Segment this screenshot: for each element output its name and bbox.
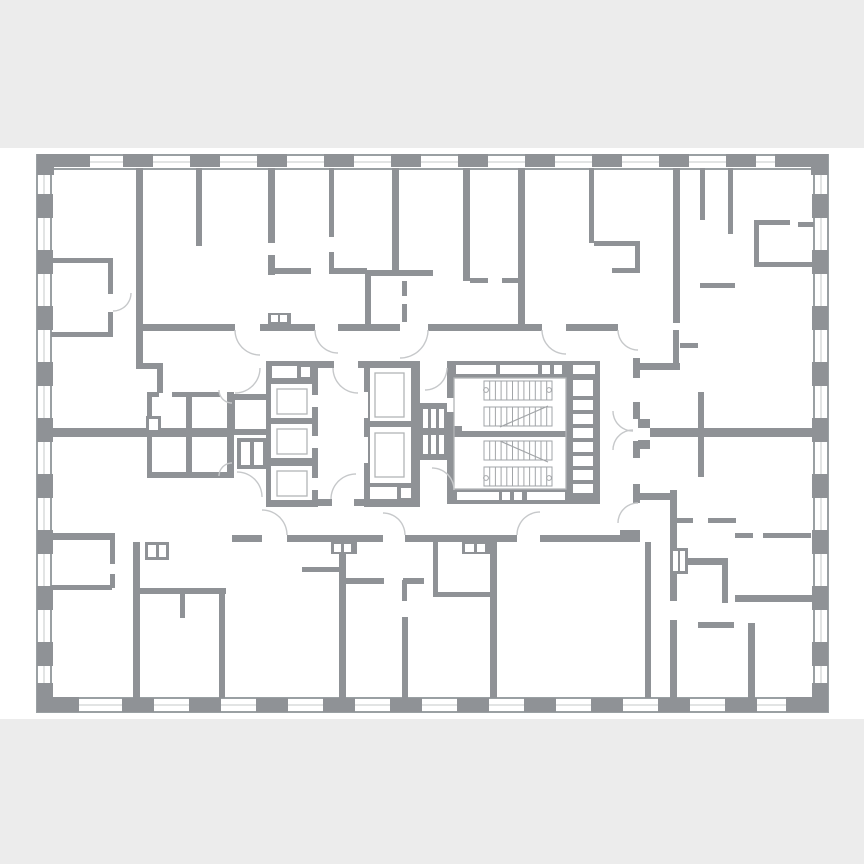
wall-segment bbox=[329, 168, 334, 237]
wall-segment bbox=[268, 168, 275, 243]
shaft-cell bbox=[573, 442, 593, 452]
wall-segment bbox=[754, 220, 790, 225]
column bbox=[458, 154, 488, 167]
wall-segment bbox=[133, 542, 140, 698]
wall-segment bbox=[339, 542, 346, 698]
shaft-cell bbox=[573, 484, 593, 493]
shaft-cell bbox=[554, 365, 562, 374]
shaft-cell bbox=[542, 365, 550, 374]
wall-segment bbox=[680, 343, 698, 348]
wall-segment bbox=[403, 578, 424, 584]
wall-segment bbox=[180, 594, 185, 618]
wall-segment bbox=[51, 585, 112, 590]
shaft-cell bbox=[465, 544, 474, 552]
column bbox=[37, 306, 53, 330]
wall-segment bbox=[670, 490, 677, 601]
shaft-cell bbox=[439, 409, 444, 428]
shaft-cell bbox=[527, 492, 565, 500]
shaft-cell bbox=[431, 409, 436, 428]
column bbox=[659, 154, 689, 167]
wall-segment bbox=[108, 258, 113, 294]
wall-segment bbox=[138, 588, 226, 594]
column bbox=[323, 698, 355, 712]
wall-segment bbox=[329, 268, 367, 274]
wall-segment bbox=[287, 535, 383, 542]
wall-segment bbox=[594, 241, 640, 246]
shaft-cell bbox=[148, 545, 156, 557]
column bbox=[726, 154, 756, 167]
shaft-cell bbox=[280, 315, 287, 322]
wall-segment bbox=[402, 304, 407, 322]
wall-segment bbox=[635, 241, 640, 271]
wall-segment bbox=[229, 429, 269, 435]
wall-segment bbox=[754, 225, 759, 267]
column bbox=[812, 306, 828, 330]
wall-segment bbox=[433, 542, 438, 597]
wall-segment bbox=[673, 330, 679, 370]
wall-segment bbox=[51, 428, 233, 437]
wall-segment bbox=[470, 278, 488, 283]
column bbox=[37, 642, 53, 666]
shaft-cell bbox=[500, 365, 538, 374]
column bbox=[390, 698, 422, 712]
corner-column bbox=[811, 154, 828, 175]
wall-segment bbox=[270, 268, 311, 274]
wall-segment bbox=[700, 168, 705, 220]
wall-segment bbox=[338, 324, 400, 331]
shaft-cell bbox=[431, 435, 436, 454]
wall-segment bbox=[650, 428, 814, 437]
shaft-cell bbox=[439, 435, 444, 454]
column bbox=[37, 362, 53, 386]
wall-segment bbox=[728, 168, 733, 234]
wall-segment bbox=[748, 623, 755, 698]
shaft-cell bbox=[423, 409, 428, 428]
shaft-cell bbox=[370, 487, 397, 499]
wall-segment bbox=[698, 622, 734, 628]
shaft-cell bbox=[573, 414, 593, 424]
wall-segment bbox=[402, 281, 407, 296]
corner-column bbox=[812, 683, 828, 712]
shaft-cell bbox=[370, 368, 411, 421]
wall-segment bbox=[428, 324, 542, 331]
wall-segment bbox=[136, 168, 143, 365]
column bbox=[37, 250, 53, 274]
column bbox=[391, 154, 421, 167]
wall-segment bbox=[700, 283, 735, 288]
shaft-cell bbox=[271, 315, 278, 322]
shaft-cell bbox=[309, 478, 318, 490]
shaft-cell bbox=[401, 488, 411, 498]
shaft-cell bbox=[241, 442, 250, 465]
shaft-cell bbox=[149, 419, 158, 430]
wall-segment bbox=[763, 533, 811, 538]
wall-segment bbox=[405, 535, 517, 542]
wall-segment bbox=[232, 535, 262, 542]
wall-segment bbox=[51, 332, 113, 337]
column bbox=[525, 154, 555, 167]
shaft-cell bbox=[514, 492, 522, 500]
wall-segment bbox=[670, 620, 677, 698]
shaft-cell bbox=[301, 367, 310, 377]
wall-segment bbox=[502, 278, 520, 283]
corner-column bbox=[37, 683, 53, 712]
column bbox=[524, 698, 556, 712]
shaft-cell bbox=[447, 398, 454, 412]
shaft-cell bbox=[477, 544, 485, 552]
column bbox=[123, 154, 153, 167]
wall-segment bbox=[673, 168, 680, 323]
wall-segment bbox=[633, 402, 640, 419]
wall-segment bbox=[633, 484, 640, 503]
column bbox=[812, 194, 828, 218]
wall-segment bbox=[566, 324, 618, 331]
wall-segment bbox=[110, 533, 115, 564]
wall-segment bbox=[708, 518, 736, 523]
column bbox=[812, 586, 828, 610]
wall-segment bbox=[490, 542, 497, 698]
wall-segment bbox=[447, 431, 570, 437]
column bbox=[37, 530, 53, 554]
wall-segment bbox=[633, 358, 640, 378]
column bbox=[37, 474, 53, 498]
shaft-cell bbox=[573, 456, 593, 466]
shaft-cell bbox=[573, 380, 593, 396]
column bbox=[37, 418, 53, 442]
wall-segment bbox=[433, 592, 493, 597]
column bbox=[324, 154, 354, 167]
wall-segment bbox=[219, 594, 225, 698]
shaft-cell bbox=[573, 428, 593, 438]
column bbox=[189, 698, 221, 712]
shaft-cell bbox=[456, 365, 496, 374]
wall-segment bbox=[798, 222, 814, 227]
shaft-cell bbox=[254, 442, 263, 465]
column bbox=[812, 418, 828, 442]
column bbox=[591, 698, 623, 712]
shaft-cell bbox=[457, 492, 499, 500]
wall-segment bbox=[640, 493, 673, 500]
column bbox=[37, 194, 53, 218]
column bbox=[592, 154, 622, 167]
wall-segment bbox=[612, 268, 640, 273]
wall-segment bbox=[51, 533, 115, 540]
column bbox=[812, 362, 828, 386]
wall-segment bbox=[365, 270, 433, 276]
top-band bbox=[0, 0, 864, 148]
wall-segment bbox=[140, 324, 235, 331]
wall-segment bbox=[196, 168, 202, 246]
shaft-cell bbox=[680, 551, 685, 571]
wall-segment bbox=[260, 324, 315, 331]
wall-segment bbox=[698, 392, 704, 477]
wall-segment bbox=[518, 168, 525, 330]
shaft-cell bbox=[573, 400, 593, 410]
floor-plan-drawing bbox=[0, 0, 864, 864]
column bbox=[190, 154, 220, 167]
wall-segment bbox=[735, 533, 753, 538]
column bbox=[257, 154, 287, 167]
column bbox=[256, 698, 288, 712]
shaft-cell bbox=[573, 365, 595, 374]
wall-segment bbox=[302, 567, 339, 572]
wall-segment bbox=[638, 440, 650, 449]
shaft-cell bbox=[309, 436, 318, 448]
wall-segment bbox=[392, 168, 399, 270]
column bbox=[658, 698, 690, 712]
column bbox=[812, 642, 828, 666]
shaft-cell bbox=[502, 492, 510, 500]
wall-segment bbox=[620, 530, 640, 537]
corner-column bbox=[37, 154, 54, 175]
wall-segment bbox=[346, 578, 384, 584]
shaft-cell bbox=[573, 470, 593, 480]
column bbox=[812, 474, 828, 498]
wall-segment bbox=[186, 397, 192, 478]
wall-segment bbox=[757, 262, 814, 267]
wall-segment bbox=[172, 392, 220, 397]
column bbox=[812, 530, 828, 554]
shaft-cell bbox=[673, 551, 678, 571]
column bbox=[122, 698, 154, 712]
shaft-cell bbox=[423, 435, 428, 454]
shaft-cell bbox=[159, 545, 166, 557]
shaft-cell bbox=[364, 392, 368, 418]
column bbox=[812, 250, 828, 274]
wall-segment bbox=[157, 363, 163, 393]
wall-segment bbox=[229, 394, 235, 435]
bottom-band bbox=[0, 719, 864, 864]
shaft-cell bbox=[370, 427, 411, 483]
wall-segment bbox=[677, 518, 693, 523]
shaft-cell bbox=[364, 437, 368, 463]
shaft-cell bbox=[334, 544, 341, 552]
wall-segment bbox=[51, 258, 113, 263]
wall-segment bbox=[463, 168, 470, 281]
wall-segment bbox=[722, 565, 728, 603]
wall-segment bbox=[365, 276, 371, 327]
column bbox=[37, 586, 53, 610]
wall-segment bbox=[110, 574, 115, 588]
wall-segment bbox=[645, 542, 651, 698]
wall-segment bbox=[589, 168, 594, 243]
column bbox=[457, 698, 489, 712]
shaft-cell bbox=[272, 366, 297, 378]
shaft-cell bbox=[309, 395, 318, 407]
wall-segment bbox=[402, 617, 408, 698]
column bbox=[725, 698, 757, 712]
shaft-cell bbox=[344, 544, 351, 552]
wall-segment bbox=[735, 595, 813, 602]
wall-segment bbox=[638, 419, 650, 428]
floor-plan-page bbox=[0, 0, 864, 864]
